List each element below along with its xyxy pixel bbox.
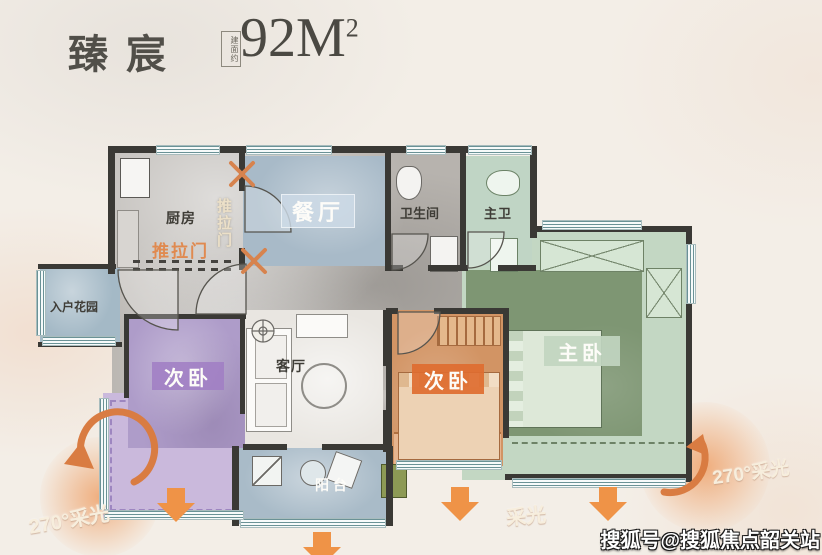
wall bbox=[243, 444, 287, 450]
label-entry-garden: 入户花园 bbox=[50, 298, 98, 315]
window bbox=[396, 460, 502, 470]
label-bedroom-right: 次卧 bbox=[412, 364, 484, 394]
label-master-bath: 主卫 bbox=[484, 203, 512, 222]
window bbox=[36, 270, 46, 336]
window bbox=[406, 145, 446, 155]
area-note: 建面约 bbox=[221, 31, 241, 67]
wall bbox=[239, 248, 245, 270]
watermark: 搜狐号@搜狐焦点韶关站 bbox=[600, 524, 820, 553]
label-daylight-bottom: 采光 bbox=[505, 498, 547, 530]
wall bbox=[322, 444, 386, 450]
label-sliding-door-horizontal: 推拉门 bbox=[152, 237, 209, 262]
window bbox=[156, 145, 220, 155]
area-superscript: 2 bbox=[346, 13, 359, 42]
wall bbox=[385, 265, 403, 271]
label-balcony: 阳台 bbox=[306, 474, 360, 496]
master-wardrobe bbox=[540, 240, 644, 272]
label-sliding-door-vertical: 推拉门 bbox=[213, 198, 234, 249]
wall bbox=[460, 153, 466, 271]
tv-cabinet bbox=[296, 314, 348, 338]
window bbox=[246, 145, 332, 155]
area-number: 92M bbox=[240, 7, 346, 69]
wall bbox=[239, 153, 245, 191]
master-closet bbox=[646, 268, 682, 318]
wall bbox=[386, 446, 393, 526]
label-master-bedroom: 主卧 bbox=[544, 336, 620, 366]
page-title: 臻宸 bbox=[68, 22, 184, 80]
sliding-door-dashes bbox=[133, 268, 237, 271]
balcony-planter bbox=[252, 456, 282, 486]
wall bbox=[428, 265, 468, 271]
toilet bbox=[486, 170, 520, 196]
sofa bbox=[246, 328, 292, 432]
rug bbox=[301, 363, 347, 409]
label-dining: 餐厅 bbox=[281, 194, 355, 228]
wall bbox=[383, 310, 389, 366]
floor-plan-poster: 臻宸 建面约 92M2 bbox=[0, 0, 822, 555]
daylight-arrow-icon bbox=[303, 532, 341, 555]
wall bbox=[385, 153, 391, 271]
fridge bbox=[120, 158, 150, 198]
window bbox=[468, 145, 532, 155]
wall bbox=[498, 265, 536, 271]
daylight-arrow-icon bbox=[589, 487, 627, 521]
wall bbox=[503, 308, 509, 438]
wall bbox=[108, 146, 115, 274]
wall bbox=[434, 308, 506, 314]
window bbox=[42, 336, 116, 346]
label-bedroom-left: 次卧 bbox=[152, 362, 224, 390]
label-living: 客厅 bbox=[276, 356, 306, 376]
area-value: 92M2 bbox=[240, 6, 359, 70]
master-bed-headboard bbox=[507, 331, 523, 427]
window bbox=[99, 398, 109, 510]
daylight-arrow-icon bbox=[441, 487, 479, 521]
wall bbox=[530, 146, 537, 238]
window bbox=[542, 220, 642, 230]
window bbox=[240, 518, 386, 528]
label-kitchen: 厨房 bbox=[166, 208, 196, 228]
window bbox=[686, 244, 696, 304]
wall bbox=[240, 314, 245, 414]
hanger-wardrobe bbox=[437, 316, 501, 346]
wall bbox=[38, 264, 116, 269]
master-bay-dashes bbox=[512, 442, 684, 444]
sofa-cushion bbox=[255, 383, 287, 427]
wall bbox=[124, 314, 246, 319]
window bbox=[104, 510, 244, 520]
window bbox=[512, 478, 686, 488]
label-bathroom: 卫生间 bbox=[400, 203, 439, 222]
toilet bbox=[396, 166, 422, 200]
wall bbox=[124, 314, 129, 398]
